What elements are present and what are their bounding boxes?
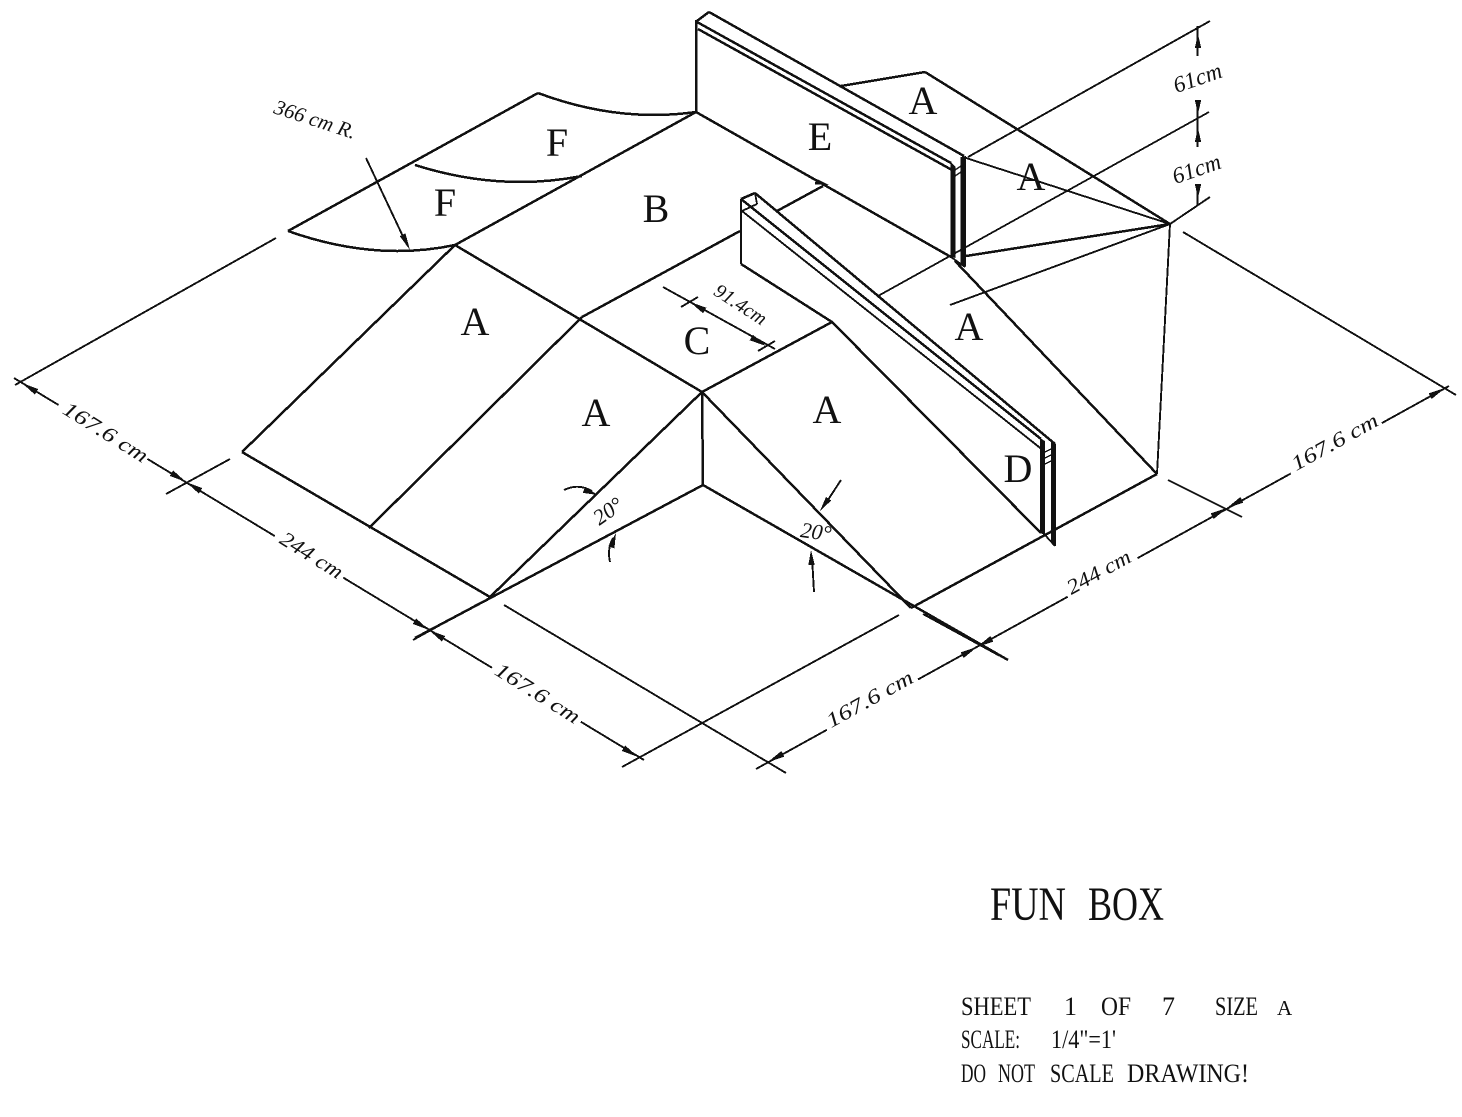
svg-text:A: A	[955, 304, 984, 349]
svg-text:SHEET1OF7SIZEA: SHEET1OF7SIZEA	[961, 992, 1293, 1021]
svg-text:A: A	[909, 78, 938, 123]
svg-text:A: A	[813, 387, 842, 432]
svg-text:E: E	[808, 114, 832, 159]
svg-text:20°: 20°	[799, 517, 833, 546]
svg-text:A: A	[1017, 154, 1046, 199]
svg-text:B: B	[643, 186, 670, 231]
svg-text:A: A	[461, 299, 490, 344]
svg-text:F: F	[546, 120, 568, 165]
svg-text:D: D	[1004, 446, 1033, 491]
svg-text:F: F	[434, 180, 456, 225]
svg-text:A: A	[582, 390, 611, 435]
svg-text:C: C	[684, 318, 711, 363]
svg-text:DONOTSCALEDRAWING!: DONOTSCALEDRAWING!	[961, 1059, 1249, 1088]
